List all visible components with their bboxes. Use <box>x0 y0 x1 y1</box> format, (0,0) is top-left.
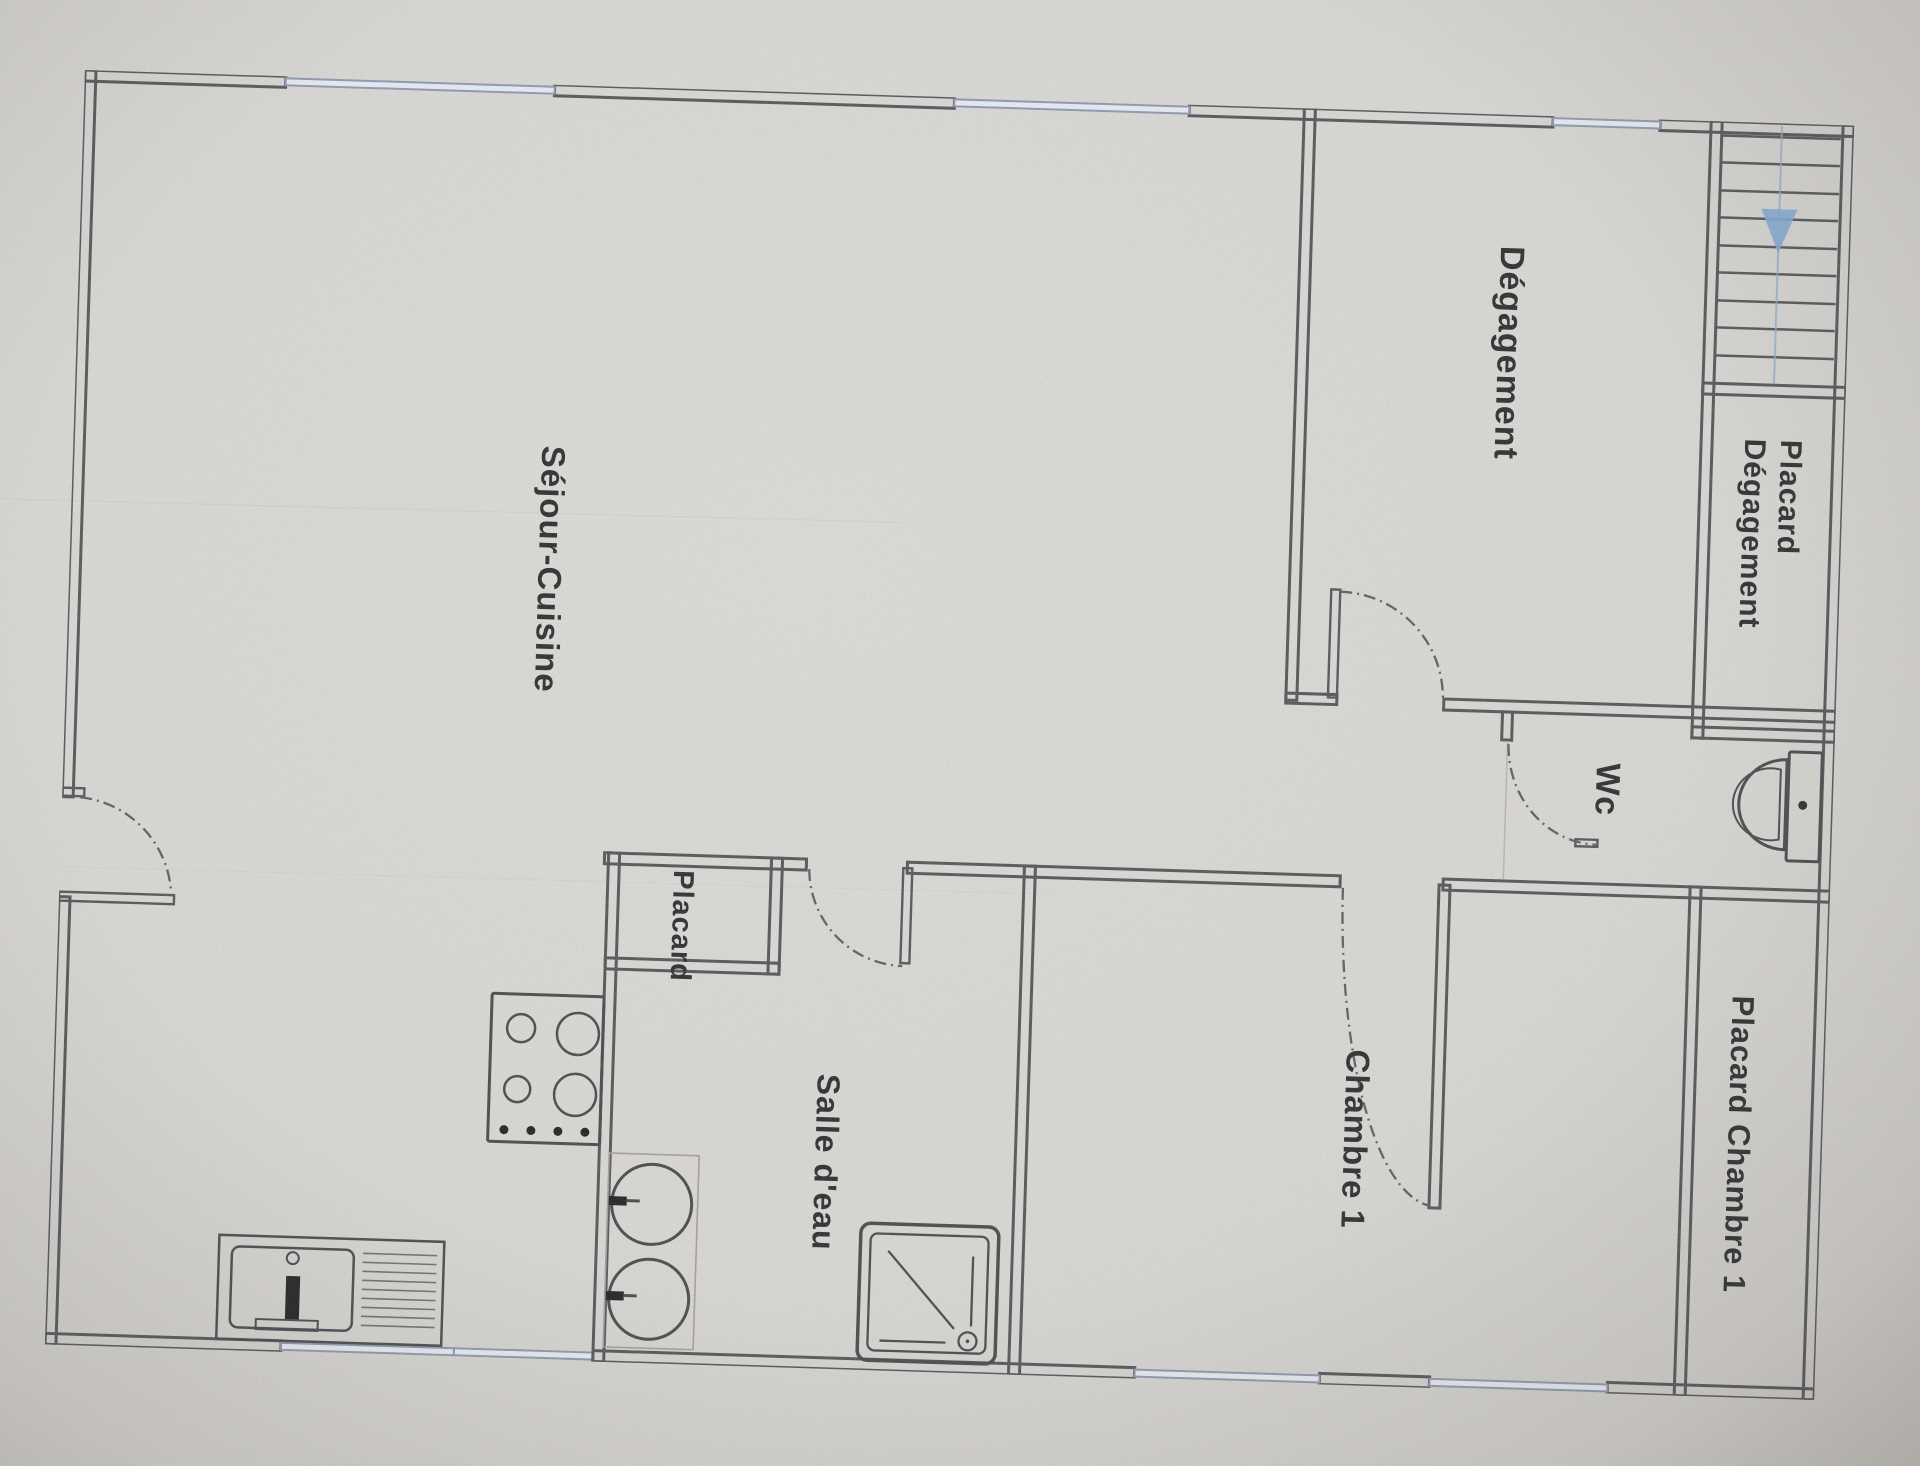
room-label-placard-degagement-line1: Placard <box>1766 439 1808 630</box>
outer-walls <box>45 70 1854 1400</box>
room-label-placard-kitchen: Placard <box>663 870 699 983</box>
wc-opening-line <box>1503 741 1507 879</box>
washing-machines-icon <box>603 1153 699 1350</box>
shower-icon <box>857 1223 999 1364</box>
bathroom-door-arc <box>806 869 905 966</box>
corridor-door-arc <box>1337 592 1446 701</box>
room-label-degagement: Dégagement <box>1485 245 1531 460</box>
staircase <box>1714 124 1841 385</box>
room-label-chambre-1: Chambre 1 <box>1333 1049 1377 1230</box>
room-label-placard-degagement-line2: Dégagement <box>1730 438 1772 629</box>
floor-plan-photo: Séjour-Cuisine Dégagement Placard Dégage… <box>0 0 1920 1466</box>
cooktop-icon <box>488 993 605 1144</box>
window-segments <box>246 78 1660 1392</box>
interior-walls <box>589 87 1854 1400</box>
toilet-icon <box>1731 750 1822 862</box>
room-label-placard-degagement: Placard Dégagement <box>1730 438 1808 630</box>
kitchen-sink-icon <box>216 1235 444 1346</box>
floor-plan: Séjour-Cuisine Dégagement Placard Dégage… <box>45 70 1854 1400</box>
door-leaves <box>58 550 1605 985</box>
room-label-sejour-cuisine: Séjour-Cuisine <box>527 445 573 693</box>
floor-plan-drawing <box>45 70 1854 1400</box>
entry-door-arc <box>77 797 174 893</box>
room-label-salle-deau: Salle d'eau <box>804 1073 847 1251</box>
room-label-wc: Wc <box>1586 763 1627 817</box>
